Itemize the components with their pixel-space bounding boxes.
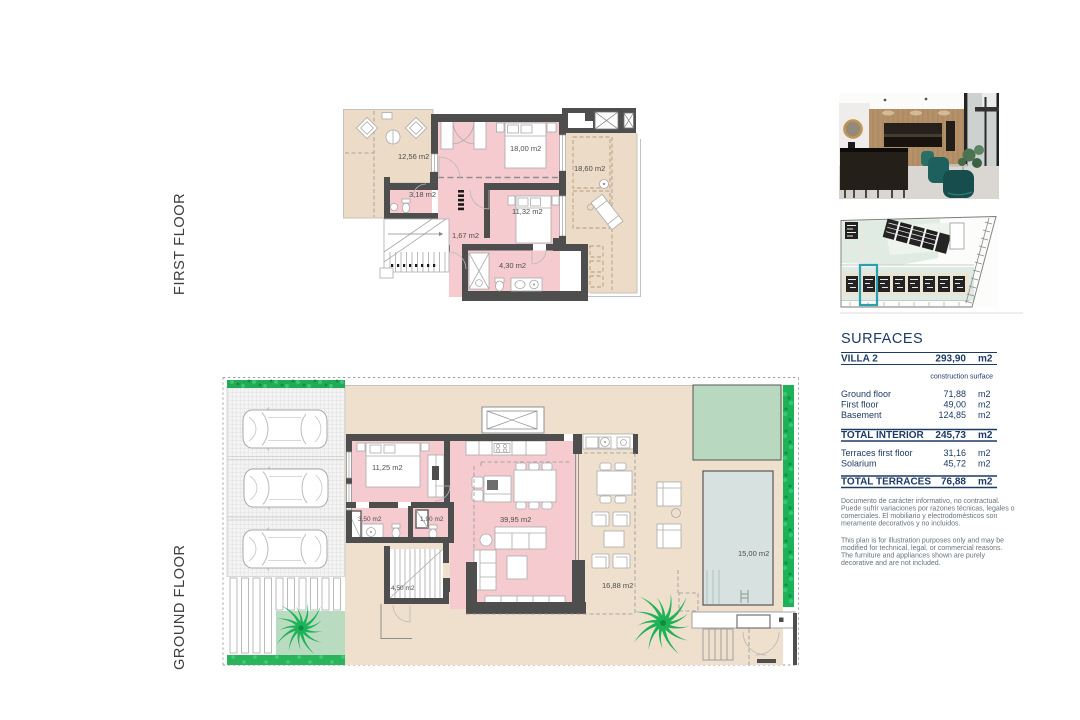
svg-text:comerciales. El mobiliario y e: comerciales. El mobiliario y electrodomé… (841, 513, 997, 520)
svg-text:245,73: 245,73 (935, 430, 966, 441)
svg-text:71,88: 71,88 (943, 389, 966, 399)
svg-text:TOTAL TERRACES: TOTAL TERRACES (841, 477, 931, 488)
svg-text:39,95 m2: 39,95 m2 (500, 515, 531, 524)
svg-text:Terraces first floor: Terraces first floor (841, 448, 913, 458)
svg-text:decorative and are not include: decorative and are not included. (841, 560, 941, 567)
svg-text:76,88: 76,88 (941, 477, 966, 488)
svg-text:m2: m2 (978, 389, 991, 399)
svg-text:11,32 m2: 11,32 m2 (512, 207, 543, 216)
svg-text:Solarium: Solarium (841, 459, 877, 469)
svg-text:18,00 m2: 18,00 m2 (510, 144, 541, 153)
svg-text:First floor: First floor (841, 400, 879, 410)
svg-text:VILLA 2: VILLA 2 (841, 354, 878, 365)
svg-text:15,00 m2: 15,00 m2 (738, 549, 769, 558)
svg-text:m2: m2 (978, 410, 991, 420)
svg-text:meramente decorativos y no inc: meramente decorativos y no incluidos. (841, 521, 961, 528)
svg-text:3,50 m2: 3,50 m2 (358, 516, 382, 523)
svg-text:FIRST FLOOR: FIRST FLOOR (172, 193, 188, 295)
svg-text:4,50 m2: 4,50 m2 (391, 585, 415, 592)
svg-text:4,30 m2: 4,30 m2 (499, 261, 526, 270)
svg-text:m2: m2 (978, 448, 991, 458)
svg-text:m2: m2 (978, 430, 993, 441)
svg-text:16,88 m2: 16,88 m2 (602, 581, 633, 590)
svg-text:31,16: 31,16 (943, 448, 966, 458)
svg-text:m2: m2 (978, 459, 991, 469)
svg-text:The furniture and appliances s: The furniture and appliances shown are p… (841, 553, 985, 560)
svg-text:TOTAL INTERIOR: TOTAL INTERIOR (841, 430, 925, 441)
svg-text:45,72: 45,72 (943, 459, 966, 469)
svg-text:293,90: 293,90 (935, 354, 966, 365)
svg-text:12,56 m2: 12,56 m2 (398, 152, 429, 161)
svg-text:m2: m2 (978, 354, 993, 365)
svg-text:GROUND FLOOR: GROUND FLOOR (172, 544, 188, 670)
svg-text:Basement: Basement (841, 410, 882, 420)
svg-text:18,60 m2: 18,60 m2 (574, 164, 605, 173)
svg-text:Documento de carácter informat: Documento de carácter informativo, no co… (841, 498, 1000, 505)
svg-text:Ground floor: Ground floor (841, 389, 891, 399)
svg-text:49,00: 49,00 (943, 400, 966, 410)
svg-text:m2: m2 (978, 477, 993, 488)
svg-text:Puede sufrir variaciones por r: Puede sufrir variaciones por razones téc… (841, 506, 1015, 513)
svg-text:This plan is for illustration: This plan is for illustration purposes o… (841, 538, 1004, 545)
svg-text:construction surface: construction surface (930, 374, 993, 381)
svg-text:m2: m2 (978, 400, 991, 410)
svg-text:SURFACES: SURFACES (841, 331, 923, 347)
svg-text:11,25 m2: 11,25 m2 (372, 463, 403, 472)
svg-text:1,90 m2: 1,90 m2 (420, 516, 444, 523)
svg-text:1,67 m2: 1,67 m2 (452, 231, 479, 240)
svg-text:124,85: 124,85 (938, 410, 966, 420)
svg-text:modified for technical, legal,: modified for technical, legal, or commer… (841, 545, 1003, 552)
